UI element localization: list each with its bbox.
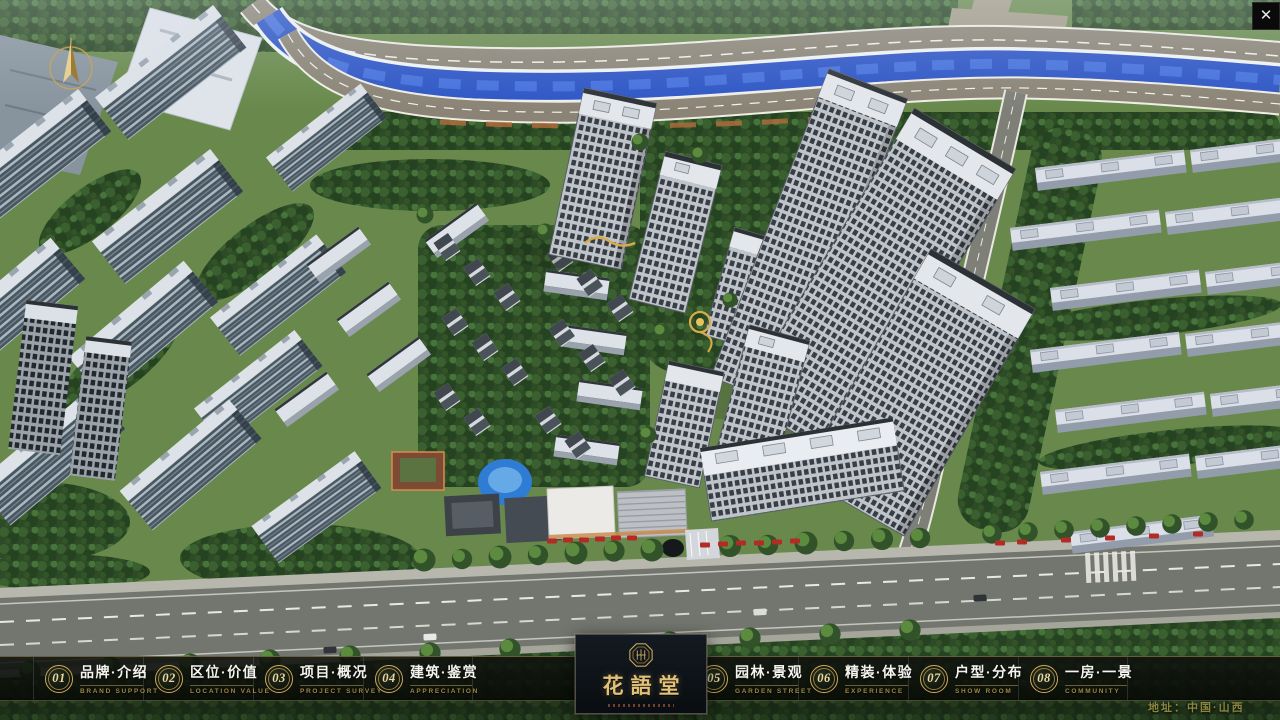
app-window: ✕ 01 品牌·介绍BRAND SUPPORT 02 区位·价值LOCATION… (0, 0, 1280, 720)
nav-item-subtitle: PROJECT SURVEY (300, 685, 363, 696)
nav-item-subtitle: BRAND SUPPORT (80, 685, 143, 696)
nav-number-badge: 02 (155, 665, 183, 693)
address-text: 地址：中国·山西 (1148, 699, 1245, 715)
nav-number-badge: 06 (810, 665, 838, 693)
nav-number-badge: 01 (45, 665, 73, 693)
nav-item-views[interactable]: 08 一房·一景COMMUNITY (1018, 657, 1128, 700)
nav-item-floorplan[interactable]: 07 户型·分布SHOW ROOM (908, 657, 1018, 700)
nav-item-title: 区位·价值 (190, 662, 253, 682)
nav-group-right: 05 园林·景观GARDEN STREET 06 精装·体验EXPERIENCE… (688, 657, 1128, 700)
nav-item-architecture[interactable]: 04 建筑·鉴赏APPRECIATION (363, 657, 473, 700)
nav-number-badge: 04 (375, 665, 403, 693)
nav-item-location[interactable]: 02 区位·价值LOCATION VALUE (143, 657, 253, 700)
close-icon: ✕ (1260, 7, 1273, 24)
brand-tagline (608, 704, 674, 707)
nav-item-subtitle: GARDEN STREET (735, 685, 798, 696)
nav-group-left: 01 品牌·介绍BRAND SUPPORT 02 区位·价值LOCATION V… (33, 657, 473, 700)
brand-logo-panel[interactable]: 花語堂 (575, 634, 707, 714)
scene-haze (0, 0, 1280, 110)
nav-item-title: 精装·体验 (845, 662, 908, 682)
nav-item-subtitle: EXPERIENCE (845, 685, 908, 696)
brand-name: 花語堂 (603, 670, 687, 700)
compass-icon (42, 28, 100, 102)
nav-item-title: 建筑·鉴赏 (410, 662, 472, 682)
nav-item-title: 一房·一景 (1065, 662, 1127, 682)
nav-item-interior[interactable]: 06 精装·体验EXPERIENCE (798, 657, 908, 700)
nav-item-title: 园林·景观 (735, 662, 798, 682)
nav-item-subtitle: SHOW ROOM (955, 685, 1018, 696)
nav-number-badge: 08 (1030, 665, 1058, 693)
nav-item-title: 品牌·介绍 (80, 662, 143, 682)
nav-item-brand[interactable]: 01 品牌·介绍BRAND SUPPORT (33, 657, 143, 700)
nav-item-title: 项目·概况 (300, 662, 363, 682)
nav-number-badge: 07 (920, 665, 948, 693)
entrance-circle (662, 539, 684, 557)
nav-item-title: 户型·分布 (955, 662, 1018, 682)
nav-number-badge: 03 (265, 665, 293, 693)
masterplan-render[interactable] (0, 0, 1280, 720)
nav-item-subtitle: LOCATION VALUE (190, 685, 253, 696)
close-button[interactable]: ✕ (1252, 2, 1280, 30)
brand-seal-icon (628, 642, 654, 668)
nav-item-subtitle: COMMUNITY (1065, 685, 1127, 696)
nav-item-project[interactable]: 03 项目·概况PROJECT SURVEY (253, 657, 363, 700)
nav-item-subtitle: APPRECIATION (410, 685, 472, 696)
